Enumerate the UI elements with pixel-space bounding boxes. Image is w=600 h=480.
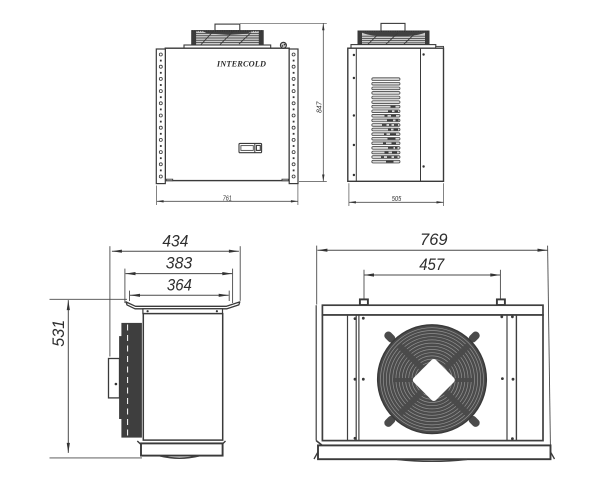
svg-text:761: 761 (223, 193, 232, 202)
svg-text:769: 769 (420, 230, 448, 249)
svg-text:457: 457 (419, 255, 444, 274)
svg-text:505: 505 (392, 194, 402, 203)
svg-text:531: 531 (50, 320, 68, 347)
svg-text:383: 383 (166, 255, 193, 273)
svg-text:INTERCOLD: INTERCOLD (216, 59, 266, 68)
svg-text:364: 364 (167, 277, 192, 295)
svg-text:434: 434 (162, 232, 188, 250)
svg-text:847: 847 (317, 100, 324, 113)
